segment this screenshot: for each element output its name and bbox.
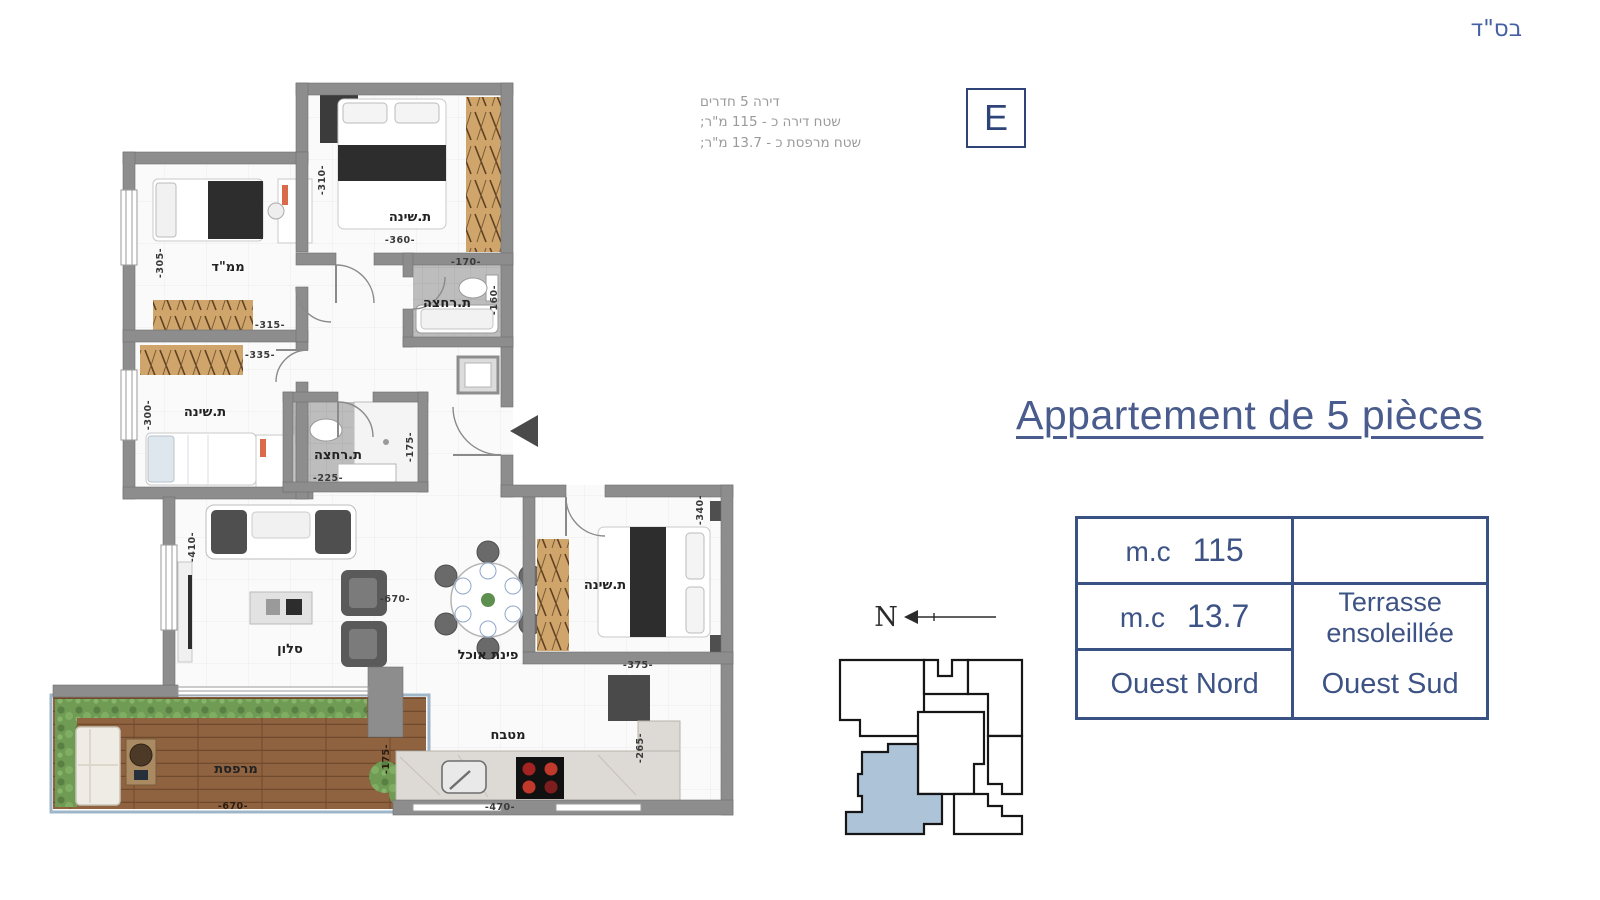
info-table: m.c 115 m.c 13.7 Terrasse ensoleillée Ou… bbox=[1075, 516, 1489, 720]
dim-mamad-w: -315- bbox=[255, 320, 285, 331]
dim-living-h: -410- bbox=[187, 532, 198, 562]
terrace-hedge-top bbox=[77, 699, 367, 718]
unit-letter-box: E bbox=[966, 88, 1026, 148]
room-label-kitchen: מטבח bbox=[490, 728, 525, 743]
vanity-mid bbox=[338, 464, 396, 482]
north-label: N bbox=[874, 602, 898, 633]
entrance-arrow bbox=[510, 415, 538, 447]
dim-bedroom-left-w: -335- bbox=[245, 350, 275, 361]
room-label-bathroom-top: ת.רחצה bbox=[423, 296, 471, 311]
dim-terrace-w: -670- bbox=[218, 801, 248, 812]
dim-bathroom-top-h: -160- bbox=[489, 285, 500, 315]
dim-bathroom-top-w: -170- bbox=[451, 257, 481, 268]
dim-terrace-h: -175- bbox=[381, 744, 392, 774]
key-unit-top-left bbox=[840, 660, 924, 736]
dim-bedroom-top-w: -360- bbox=[385, 235, 415, 246]
dim-mamad-h: -305- bbox=[155, 248, 166, 278]
north-arrow-head bbox=[904, 610, 918, 624]
dim-living-w: -670- bbox=[380, 594, 410, 605]
terrace-unit-label: m.c bbox=[1120, 602, 1165, 634]
dim-master-w: -375- bbox=[623, 660, 653, 671]
room-label-dining: פינת אוכל bbox=[458, 648, 519, 663]
apartment-spec-block: דירה 5 חדרים שטח דירה כ - 115 מ"ר; שטח מ… bbox=[700, 88, 1026, 153]
coffee-table bbox=[250, 592, 312, 624]
toilet-top bbox=[459, 278, 487, 298]
dim-bedroom-left-h: -300- bbox=[143, 400, 154, 430]
area-unit-label: m.c bbox=[1126, 536, 1171, 568]
wardrobe-top-bedroom bbox=[466, 97, 504, 252]
dim-bathroom-mid-w: -225- bbox=[313, 473, 343, 484]
outdoor-rug-table bbox=[126, 739, 156, 785]
table-cell-terrace-area: m.c 13.7 bbox=[1078, 585, 1294, 651]
key-plan bbox=[826, 648, 1031, 844]
terrace-label-line1: Terrasse bbox=[1338, 587, 1442, 618]
bsd-text: בס"ד bbox=[1471, 16, 1522, 42]
room-label-bedroom-top: ת.שינה bbox=[389, 210, 431, 225]
room-label-master: ת.שינה bbox=[584, 578, 626, 593]
tv bbox=[188, 575, 192, 649]
shaft bbox=[458, 357, 498, 393]
dim-master-h: -340- bbox=[695, 495, 706, 525]
fridge bbox=[608, 675, 650, 721]
room-label-mamad: ממ"ד bbox=[211, 260, 244, 275]
room-label-bedroom-left: ת.שינה bbox=[184, 405, 226, 420]
table-cell-empty bbox=[1294, 519, 1486, 585]
terrace-hedge-left bbox=[55, 699, 77, 807]
wardrobe-mamad bbox=[153, 300, 253, 330]
key-unit-top-center bbox=[924, 660, 968, 694]
outdoor-sofa bbox=[76, 727, 120, 805]
wardrobe-left-bedroom bbox=[140, 345, 243, 375]
dim-bathroom-mid-h: -175- bbox=[405, 432, 416, 462]
room-label-terrace: מרפסת bbox=[214, 762, 258, 777]
bedroom-top-furniture bbox=[320, 95, 504, 252]
room-label-living: סלון bbox=[277, 642, 303, 657]
table-cell-orientation-left: Ouest Nord bbox=[1078, 651, 1294, 717]
north-arrow: N bbox=[868, 598, 1008, 638]
dim-kitchen-h: -265- bbox=[635, 733, 646, 763]
page-title: Appartement de 5 pièces bbox=[1016, 392, 1536, 439]
dim-kitchen-w: -470- bbox=[485, 802, 515, 813]
room-label-bathroom-mid: ת.רחצה bbox=[314, 448, 362, 463]
area-value: 115 bbox=[1193, 532, 1244, 569]
wardrobe-master bbox=[537, 539, 569, 651]
unit-letter: E bbox=[984, 97, 1008, 139]
key-unit-center bbox=[918, 712, 984, 794]
table-cell-area: m.c 115 bbox=[1078, 519, 1294, 585]
key-unit-bottom-right bbox=[954, 794, 1022, 834]
table-cell-terrace-label: Terrasse ensoleillée bbox=[1294, 585, 1486, 651]
stove bbox=[516, 757, 564, 799]
terrace-value: 13.7 bbox=[1187, 598, 1249, 635]
table-cell-orientation-right: Ouest Sud bbox=[1294, 651, 1486, 717]
terrace-label-line2: ensoleillée bbox=[1326, 618, 1454, 649]
key-plan-units bbox=[840, 660, 1022, 834]
floor-plan: ת.שינה ממ"ד ת.רחצה ת.רחצה ת.שינה סלון פי… bbox=[38, 75, 743, 837]
dim-bedroom-top-h: -310- bbox=[317, 165, 328, 195]
key-unit-right bbox=[988, 736, 1022, 794]
